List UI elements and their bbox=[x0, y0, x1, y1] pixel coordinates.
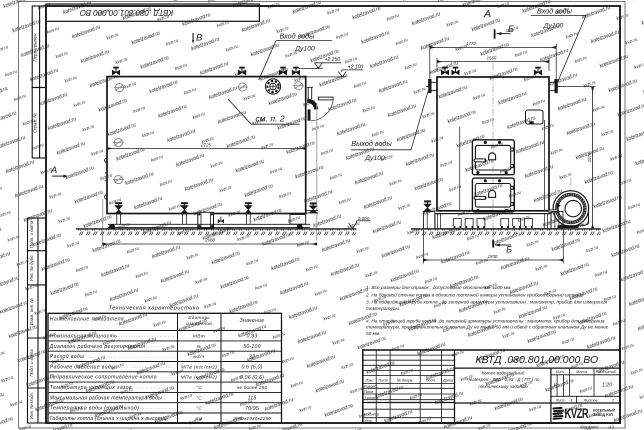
svg-text:Техническая характеристика: Техническая характеристика bbox=[109, 306, 200, 312]
svg-text:температуры.: температуры. bbox=[366, 307, 400, 312]
svg-text:Листов: Листов bbox=[583, 398, 598, 402]
svg-text:Рабочее давление воды: Рабочее давление воды bbox=[50, 364, 116, 370]
svg-text:115: 115 bbox=[248, 396, 257, 402]
svg-text:Heatexpert - КВр - 0,93 - Д (: Heatexpert - КВр - 0,93 - Д ( ПТ ) по bbox=[466, 377, 540, 382]
svg-text:КВТД .080.801.00.000 ВО: КВТД .080.801.00.000 ВО bbox=[80, 8, 174, 17]
svg-text:Единицы: Единицы bbox=[188, 315, 210, 321]
svg-text:МВт: МВт bbox=[193, 334, 205, 340]
svg-text:%: % bbox=[197, 344, 202, 350]
svg-text:1770: 1770 bbox=[466, 41, 476, 46]
svg-text:0.000: 0.000 bbox=[358, 216, 370, 221]
svg-text:Котел водогрейный: Котел водогрейный bbox=[482, 369, 525, 375]
svg-text:Температура уходящих газов: Температура уходящих газов bbox=[50, 385, 132, 391]
svg-text:Наименование показателя: Наименование показателя bbox=[50, 317, 124, 323]
svg-text:Гидравлическое сопротивление к: Гидравлическое сопротивление котла bbox=[50, 375, 157, 381]
svg-text:Расход воды: Расход воды bbox=[50, 354, 85, 360]
svg-text:Масштаб: Масштаб bbox=[598, 370, 617, 374]
svg-text:2725: 2725 bbox=[200, 142, 212, 147]
svg-text:мм: мм bbox=[195, 417, 203, 422]
svg-text:KVZR: KVZR bbox=[565, 405, 590, 421]
svg-text:температуры, предохранительный: температуры, предохранительный клапан Ду… bbox=[366, 324, 609, 331]
svg-text:ЗАВОД РЭП: ЗАВОД РЭП bbox=[593, 413, 614, 417]
svg-text:Ду100: Ду100 bbox=[543, 23, 564, 30]
svg-text:70/95: 70/95 bbox=[245, 406, 259, 412]
svg-text:50 мм.: 50 мм. bbox=[366, 331, 381, 337]
svg-text:измерения: измерения bbox=[186, 322, 212, 327]
svg-text:№ докум.: № докум. bbox=[397, 378, 414, 382]
svg-text:Формат: Формат bbox=[580, 424, 598, 429]
svg-text:А3: А3 bbox=[607, 424, 614, 429]
svg-text:1975: 1975 bbox=[587, 152, 592, 162]
svg-text:Вход воды: Вход воды bbox=[280, 32, 316, 41]
svg-text:°С: °С bbox=[196, 406, 202, 412]
svg-text:Инв. № дубл.: Инв. № дубл. bbox=[29, 254, 34, 281]
svg-text:Габариты котла (длинна х ширин: Габариты котла (длинна х ширина х высота… bbox=[50, 416, 167, 422]
svg-text:0,06 (0,6): 0,06 (0,6) bbox=[240, 375, 264, 381]
svg-text:Утв.: Утв. bbox=[364, 419, 373, 423]
svg-text:Значение: Значение bbox=[240, 318, 265, 324]
svg-text:МПа (кгс/см2): МПа (кгс/см2) bbox=[181, 364, 218, 370]
svg-text:1560: 1560 bbox=[487, 55, 497, 60]
svg-text:А: А bbox=[50, 165, 57, 176]
svg-text:Подп. и дата: Подп. и дата bbox=[29, 220, 34, 248]
svg-text:Т.контр.: Т.контр. bbox=[364, 396, 379, 400]
svg-text:Дата: Дата bbox=[442, 378, 453, 382]
svg-text:Масса: Масса bbox=[576, 370, 587, 374]
svg-text:техническому заданию: техническому заданию bbox=[478, 384, 528, 389]
svg-text:3. На подводящей трубе котла: 3. На подводящей трубе котла , до запорн… bbox=[366, 299, 607, 306]
svg-text:2980х1930х2250: 2980х1930х2250 bbox=[232, 416, 271, 421]
svg-text:Диапазон рабочего регулировани: Диапазон рабочего регулирования bbox=[49, 344, 146, 350]
svg-text:И: И bbox=[554, 383, 558, 389]
svg-text:Перв. примен.: Перв. примен. bbox=[32, 32, 37, 61]
svg-text:°С: °С bbox=[196, 385, 202, 391]
svg-text:1930: 1930 bbox=[488, 254, 498, 259]
svg-text:не более 250: не более 250 bbox=[237, 385, 268, 390]
svg-text:0,93: 0,93 bbox=[247, 334, 258, 340]
svg-text:Пров.: Пров. bbox=[364, 390, 374, 394]
svg-text:Справ. №: Справ. № bbox=[32, 113, 37, 133]
svg-text:+2.250: +2.250 bbox=[325, 57, 341, 63]
svg-text:+2.100: +2.100 bbox=[348, 64, 364, 70]
svg-text:Ду100: Ду100 bbox=[294, 46, 315, 53]
svg-text:4. На отводящей трубе котла ,: 4. На отводящей трубе котла ,до запорной… bbox=[366, 318, 605, 325]
svg-text:КВТД .080.801.00.000 ВО: КВТД .080.801.00.000 ВО bbox=[475, 354, 598, 366]
svg-text:Подп. и дата: Подп. и дата bbox=[29, 349, 34, 377]
svg-text:0,6 (6,0): 0,6 (6,0) bbox=[241, 365, 262, 371]
svg-text:см. п. 2: см. п. 2 bbox=[255, 113, 284, 123]
svg-text:1. Все размеры для справок ,: 1. Все размеры для справок , допустимые … bbox=[366, 285, 512, 291]
svg-text:Лист: Лист bbox=[377, 378, 388, 382]
svg-text:МПа (кгс/см2): МПа (кгс/см2) bbox=[181, 375, 218, 381]
svg-text:Б: Б bbox=[506, 245, 512, 255]
svg-text:Лит.: Лит. bbox=[555, 370, 565, 374]
svg-text:Лист: Лист bbox=[555, 398, 566, 402]
svg-text:Ду100: Ду100 bbox=[364, 155, 385, 162]
svg-text:Взам. инв. №: Взам. инв. № bbox=[29, 298, 34, 325]
svg-text:А: А bbox=[483, 8, 491, 20]
svg-text:Разраб.: Разраб. bbox=[364, 385, 378, 389]
svg-text:Номинальная мощность: Номинальная мощность bbox=[50, 334, 118, 340]
svg-text:Максимальная рабочая температу: Максимальная рабочая температура воды bbox=[50, 395, 162, 401]
svg-text:Н.контр.: Н.контр. bbox=[364, 412, 380, 416]
svg-text:Б: Б bbox=[508, 24, 514, 35]
svg-text:2. На боковой стенке котла в: 2. На боковой стенке котла в области топ… bbox=[365, 291, 584, 298]
svg-text:50-100: 50-100 bbox=[243, 344, 260, 350]
svg-text:1: 1 bbox=[571, 398, 573, 402]
svg-text:Изм.: Изм. bbox=[365, 378, 373, 382]
svg-text:Инв. № подл.: Инв. № подл. bbox=[29, 392, 34, 419]
svg-text:1:20: 1:20 bbox=[602, 383, 612, 389]
svg-text:Вход воды: Вход воды bbox=[537, 7, 573, 16]
svg-text:Выход воды: Выход воды bbox=[351, 139, 392, 148]
svg-text:В: В bbox=[196, 32, 203, 43]
svg-text:м3/ч: м3/ч bbox=[193, 354, 204, 360]
svg-text:Подп.: Подп. bbox=[426, 378, 436, 382]
svg-text:2980: 2980 bbox=[204, 238, 216, 243]
svg-text:°С: °С bbox=[196, 395, 202, 401]
svg-text:32: 32 bbox=[249, 354, 255, 360]
